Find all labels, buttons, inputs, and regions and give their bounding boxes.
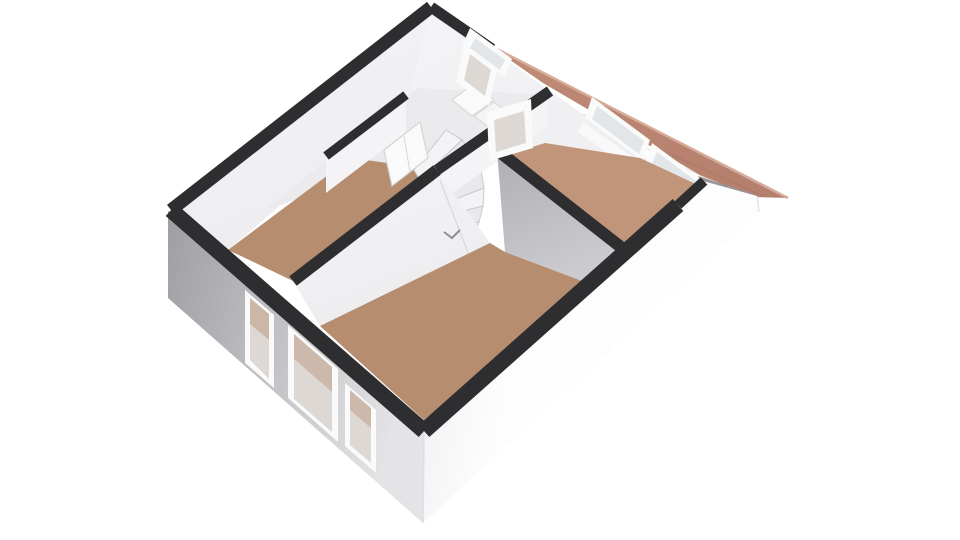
facade-corner-edge (423, 431, 424, 523)
floorplan-3d-drawing (0, 0, 960, 540)
floorplan-3d-canvas (0, 0, 960, 540)
